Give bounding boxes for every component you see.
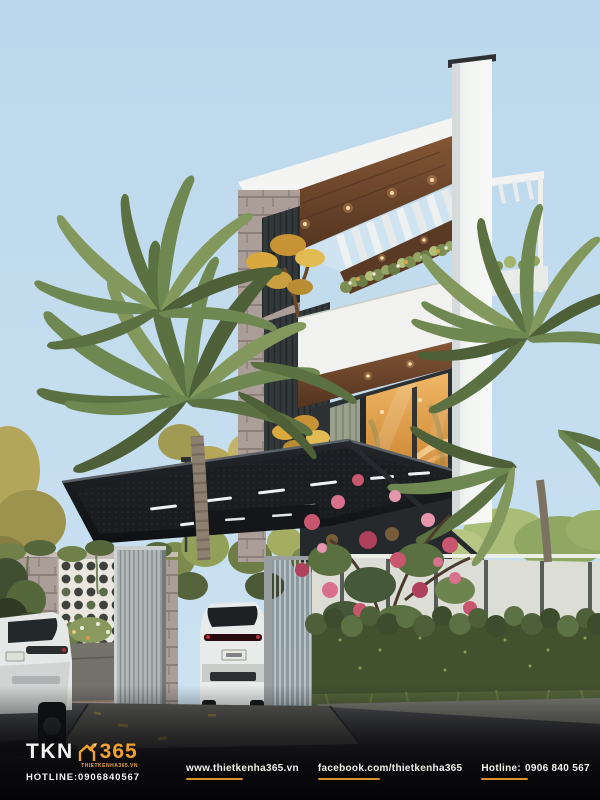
footer-hotline-label: Hotline: xyxy=(481,763,521,774)
footer-contact-bar: www.thietkenha365.vn facebook.com/thietk… xyxy=(186,763,590,780)
footer-facebook: facebook.com/thietkenha365 xyxy=(318,763,463,780)
logo-text-365: 365 xyxy=(100,741,138,762)
logo-hotline: HOTLINE:0906840567 xyxy=(26,772,156,783)
render-image: TKN 365 THIETKENHA365.VN HOTLINE:0906840… xyxy=(0,0,600,800)
scene xyxy=(0,0,600,800)
logo-site-url: THIETKENHA365.VN xyxy=(26,763,138,769)
footer-hotline-number: 0906 840 567 xyxy=(525,763,590,774)
brand-logo: TKN 365 THIETKENHA365.VN HOTLINE:0906840… xyxy=(26,741,156,783)
footer-hotline: Hotline:0906 840 567 xyxy=(481,763,589,780)
house-pencil-icon xyxy=(77,743,97,763)
logo-text-tkn: TKN xyxy=(26,741,74,762)
footer-website: www.thietkenha365.vn xyxy=(186,763,299,780)
